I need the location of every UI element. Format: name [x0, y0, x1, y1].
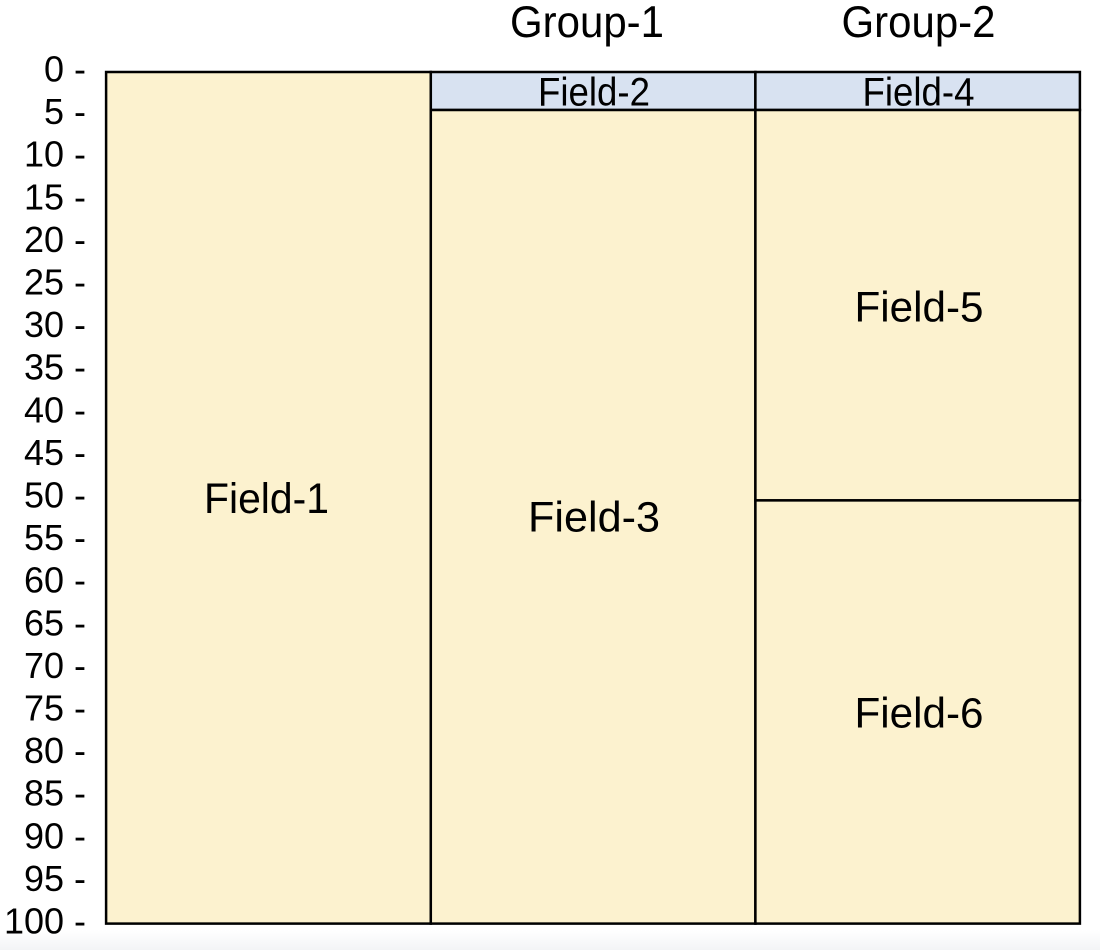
svg-text:25 -: 25 -: [24, 262, 86, 303]
svg-text:30 -: 30 -: [24, 304, 86, 345]
svg-text:10 -: 10 -: [24, 134, 86, 175]
svg-text:45 -: 45 -: [24, 432, 86, 473]
svg-text:40 -: 40 -: [24, 389, 86, 430]
svg-text:85 -: 85 -: [24, 773, 86, 814]
svg-text:70 -: 70 -: [24, 645, 86, 686]
svg-text:5 -: 5 -: [44, 91, 86, 132]
svg-text:55 -: 55 -: [24, 517, 86, 558]
svg-text:Field-3: Field-3: [528, 494, 660, 542]
svg-text:20 -: 20 -: [24, 219, 86, 260]
svg-text:60 -: 60 -: [24, 560, 86, 601]
svg-text:Group-1: Group-1: [510, 0, 664, 47]
svg-text:35 -: 35 -: [24, 347, 86, 388]
svg-text:Field-6: Field-6: [855, 689, 984, 737]
svg-text:100 -: 100 -: [4, 901, 86, 942]
svg-text:65 -: 65 -: [24, 602, 86, 643]
svg-text:Group-2: Group-2: [842, 0, 996, 47]
svg-text:0 -: 0 -: [44, 49, 86, 90]
svg-text:15 -: 15 -: [24, 176, 86, 217]
svg-text:Field-2: Field-2: [538, 70, 650, 114]
svg-text:Field-4: Field-4: [863, 70, 975, 114]
svg-text:75 -: 75 -: [24, 688, 86, 729]
svg-text:Field-1: Field-1: [204, 475, 329, 523]
svg-text:Field-5: Field-5: [855, 284, 984, 332]
svg-text:95 -: 95 -: [24, 858, 86, 899]
svg-text:90 -: 90 -: [24, 815, 86, 856]
svg-text:80 -: 80 -: [24, 730, 86, 771]
svg-text:50 -: 50 -: [24, 475, 86, 516]
